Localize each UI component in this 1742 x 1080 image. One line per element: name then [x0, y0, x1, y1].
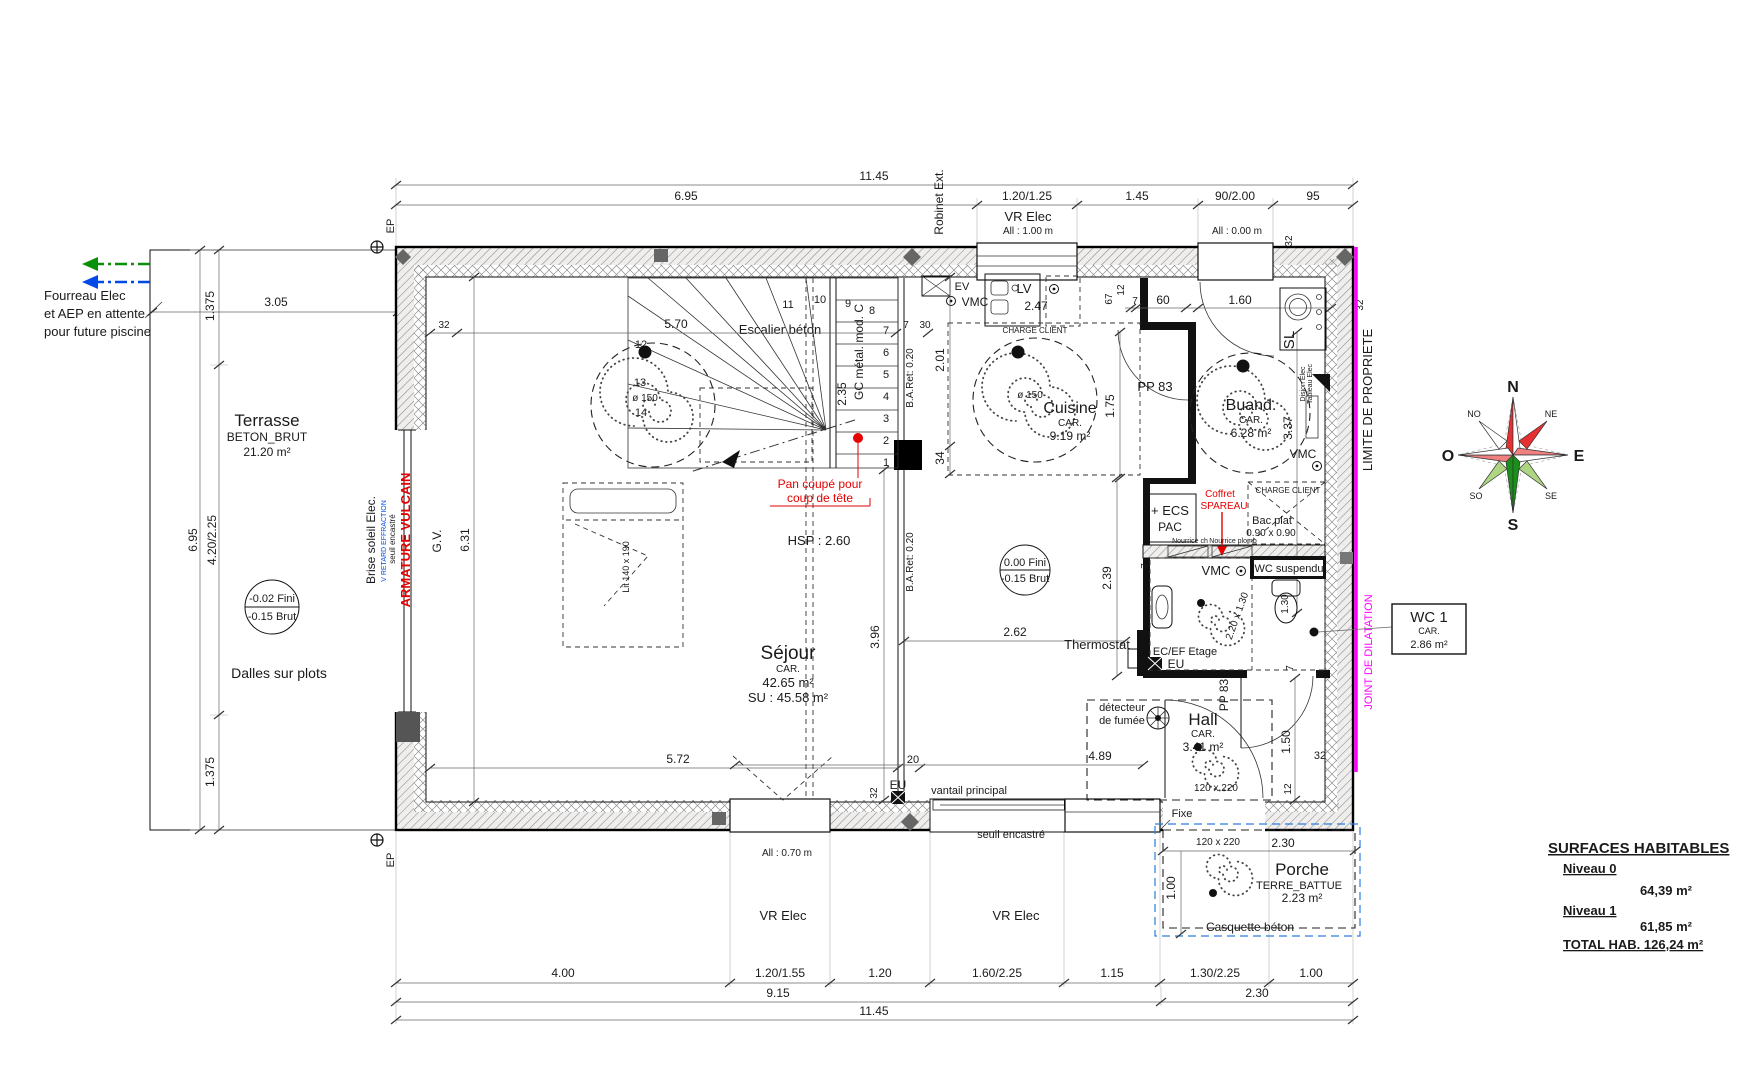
cuisine-area: 9.19 m² — [1050, 429, 1091, 443]
dim-top-695: 6.95 — [674, 189, 698, 203]
tableau-label: Tableau Elec — [1307, 363, 1314, 404]
dim-631: 6.31 — [458, 528, 472, 552]
sink-unit: EV VMC LV 2.47 — [922, 274, 1080, 326]
limite-propriete-label: LIMITE DE PROPRIETE — [1360, 329, 1375, 472]
dim-bot-overall: 11.45 — [859, 1004, 888, 1018]
dim-bot-seg5: 1.15 — [1100, 966, 1124, 980]
svg-text:13: 13 — [634, 377, 646, 389]
fourreau-note-line1: Fourreau Elec — [44, 288, 126, 303]
terrasse-title: Terrasse — [234, 411, 299, 430]
dim-bot-seg2: 1.20/1.55 — [755, 966, 805, 980]
sejour-area: 42.65 m² — [762, 675, 814, 690]
terrasse-area-value: 21.20 m² — [243, 445, 290, 459]
dim-bot-915: 9.15 — [766, 986, 790, 1000]
dim-337: 3.37 — [1281, 416, 1295, 440]
dim-160: 1.60 — [1228, 293, 1252, 307]
allege-070-label: All : 0.70 m — [762, 848, 812, 859]
sejour-car: CAR. — [776, 664, 800, 675]
fixed-panel — [1065, 799, 1160, 832]
dim-150-hall: 1.50 — [1279, 730, 1293, 754]
svg-text:9: 9 — [845, 298, 851, 310]
toilet-symbol: 1.30 — [1272, 580, 1300, 623]
sejour-su: SU : 45.58 m² — [748, 690, 829, 705]
stair-title: Escalier béton — [739, 322, 821, 337]
gv-label: G.V. — [430, 530, 444, 553]
joint-dilatation-label: JOINT DE DILATATION — [1363, 594, 1375, 709]
ecef-label: EC/EF Etage — [1153, 646, 1217, 658]
surfaces-niveau1: Niveau 1 — [1563, 903, 1616, 918]
wc-suspendu-label: WC suspendu — [1254, 563, 1323, 575]
washer-dryer-unit: SL — [1280, 288, 1326, 350]
dim-130: 1.30 — [1280, 594, 1291, 614]
fourreau-note-line3: pour future piscine — [44, 324, 151, 339]
armature-vulcain-label: ARMATURE VULCAIN — [398, 473, 413, 608]
floor-plan-sheet: 3.05 Terrasse BETON_BRUT 21.20 m² -0.02 … — [0, 0, 1742, 1080]
dim-420-225: 4.20/2.25 — [205, 515, 219, 565]
dim-1375-top: 1.375 — [203, 291, 217, 321]
allege-000-label: All : 0.00 m — [1212, 226, 1262, 237]
compass-se: SE — [1545, 491, 1557, 501]
wc-size-label: 2.20 x 1.30 — [1224, 591, 1251, 642]
level-marker-interior: 0.00 Fini -0.15 Brut — [1000, 545, 1050, 595]
allege-100-label: All : 1.00 m — [1003, 226, 1053, 237]
compass-so: SO — [1469, 491, 1482, 501]
ecs-line2: PAC — [1158, 520, 1182, 534]
wc1-title: WC 1 — [1410, 609, 1448, 626]
pan-coupe-line1: Pan coupé pour — [778, 477, 863, 491]
hall-door-size: 120 x 220 — [1194, 783, 1238, 794]
svg-text:3: 3 — [883, 413, 889, 425]
dim-1375-bottom: 1.375 — [203, 757, 217, 787]
cuisine-circle-dim: ø 150 — [1017, 390, 1043, 401]
coffret-label1: Coffret — [1205, 489, 1235, 500]
dim-489: 4.89 — [1088, 749, 1112, 763]
cuisine-car: CAR. — [1058, 418, 1082, 429]
window-bottom-sejour — [730, 756, 833, 832]
svg-text:4: 4 — [883, 391, 889, 403]
sl-label: SL — [1281, 331, 1298, 349]
nourrice-plomb-label: Nourrice plomb — [1209, 538, 1257, 545]
dim-7-sejour: 7 — [903, 320, 909, 331]
dim-top-seg4: 95 — [1306, 189, 1320, 203]
dim-bot-seg1: 4.00 — [551, 966, 575, 980]
eu-marker-bottom: EU — [890, 778, 907, 804]
property-line: LIMITE DE PROPRIETE JOINT DE DILATATION — [1356, 247, 1375, 772]
pp83-kitchen-label: PP 83 — [1137, 379, 1172, 394]
dim-32-bottom: 32 — [869, 787, 880, 799]
svg-text:0.00 Fini: 0.00 Fini — [1004, 557, 1046, 569]
svg-text:8: 8 — [869, 305, 875, 317]
fourreau-note-line2: et AEP en attente — [44, 306, 145, 321]
stair-gc-label: GC métal. mod. C — [852, 304, 866, 400]
dim-262: 2.62 — [1003, 625, 1027, 639]
dim-32-hall: 32 — [1314, 750, 1326, 762]
svg-text:EU: EU — [1168, 657, 1185, 671]
buand-car: CAR. — [1239, 415, 1263, 426]
dim-34: 34 — [933, 451, 947, 465]
buand-area: 6.28 m² — [1231, 426, 1272, 440]
wc1-car: CAR. — [1418, 626, 1440, 636]
svg-text:5: 5 — [883, 369, 889, 381]
porche-title: Porche — [1275, 860, 1329, 879]
dim-12: 12 — [1116, 284, 1127, 296]
seuil-bottom-label: seuil encastré — [977, 829, 1045, 841]
svg-text:11: 11 — [782, 299, 793, 311]
retard-effraction-label: V RETARD EFFRACTION — [381, 500, 388, 582]
vr-elec-bottom1: VR Elec — [760, 908, 807, 923]
svg-text:2: 2 — [883, 435, 889, 447]
vr-elec-bottom2: VR Elec — [993, 908, 1040, 923]
dim-7-kitchen: 7 — [1132, 296, 1138, 307]
dim-30: 30 — [919, 320, 931, 331]
svg-text:EU: EU — [890, 778, 907, 792]
smoke-detector-icon — [1147, 707, 1169, 729]
compass-rose: N NE E SE S SO O NO — [1442, 379, 1585, 534]
dim-239: 2.39 — [1100, 566, 1114, 590]
cuisine-title: Cuisine — [1043, 400, 1096, 417]
bac-size-label: 0.90 x 0.90 — [1246, 528, 1296, 539]
compass-o: O — [1442, 448, 1454, 465]
wc1-area: 2.86 m² — [1410, 639, 1448, 651]
wc-room: VMC WC suspendu 1.30 2.20 x 1.30 2.39 7 … — [899, 474, 1326, 680]
dim-230-porche: 2.30 — [1271, 836, 1295, 850]
bac-plat-label: Bac plat — [1252, 515, 1292, 527]
svg-text:10: 10 — [814, 294, 826, 306]
dim-7-wc: 7 — [1140, 563, 1151, 569]
dim-top-seg2: 1.45 — [1125, 189, 1149, 203]
coffret-label2: SPAREAU — [1200, 501, 1247, 512]
vr-elec-top-label: VR Elec — [1005, 209, 1052, 224]
wall-32-top-right: 32 — [1284, 235, 1295, 247]
dim-top-overall: 11.45 — [859, 169, 888, 183]
nourrice-ch-label: Nourrice ch — [1172, 538, 1208, 545]
vmc-wc-label: VMC — [1202, 563, 1231, 578]
dim-175: 1.75 — [1103, 394, 1117, 418]
bed-symbol: Lit 140 x 190 — [563, 483, 683, 647]
charge-client-bac: CHARGE CLIENT — [1256, 486, 1321, 495]
lv-label: LV — [1017, 281, 1032, 296]
dim-32-sejour: 32 — [438, 320, 450, 331]
casquette-label: Casquette béton — [1206, 920, 1294, 934]
compass-n: N — [1507, 379, 1519, 396]
ep-top-label: EP — [385, 219, 397, 234]
hall-car: CAR. — [1191, 729, 1215, 740]
compass-ne: NE — [1545, 409, 1558, 419]
ev-label: EV — [955, 281, 970, 293]
dim-396: 3.96 — [868, 625, 882, 649]
surfaces-value0: 64,39 m² — [1640, 883, 1693, 898]
dim-7-wc2: 7 — [1285, 665, 1296, 671]
robinet-ext-label: Robinet Ext. — [932, 169, 946, 234]
shower-tray-zone: CHARGE CLIENT Bac plat 0.90 x 0.90 — [1246, 482, 1325, 544]
pp83-hall-label: PP 83 — [1217, 678, 1231, 711]
svg-text:14: 14 — [635, 407, 647, 419]
green-arrow-icon — [82, 257, 98, 271]
dim-201: 2.01 — [933, 348, 947, 372]
ecs-line1: + ECS — [1151, 503, 1189, 518]
dim-bot-seg7: 1.00 — [1299, 966, 1323, 980]
baret-label-1: B.A.Ret: 0.20 — [905, 348, 916, 408]
cuisine-room: EV VMC LV 2.47 CHARGE CLIENT ø 150 Cuisi… — [922, 273, 1336, 482]
blue-arrow-icon — [82, 275, 98, 289]
sejour-room: ø 150 Lit 140 x 190 HSP : 2.60 Séjour CA… — [425, 317, 1045, 841]
vmc-buand-label: VMC — [1290, 447, 1317, 461]
sliding-door-vantail — [930, 799, 1083, 832]
hall-area: 3.41 m² — [1183, 740, 1224, 754]
terrasse-level-fini: -0.02 Fini — [249, 593, 295, 605]
dim-570: 5.70 — [664, 317, 688, 331]
surfaces-value1: 61,85 m² — [1640, 919, 1693, 934]
thermostat-label: Thermostat — [1064, 637, 1130, 652]
stair-235-dim: 2.35 — [835, 382, 849, 406]
dim-12-hall: 12 — [1283, 783, 1294, 795]
terrasse-note: Dalles sur plots — [231, 665, 327, 681]
dim-bot-seg4: 1.60/2.25 — [972, 966, 1022, 980]
surfaces-title: SURFACES HABITABLES — [1548, 840, 1729, 857]
vantail-label: vantail principal — [931, 785, 1007, 797]
svg-text:7: 7 — [883, 325, 889, 337]
detecteur-line2: de fumée — [1099, 715, 1145, 727]
surfaces-total: TOTAL HAB. 126,24 m² — [1563, 937, 1704, 952]
detecteur-line1: détecteur — [1099, 702, 1145, 714]
charge-client-kitchen: CHARGE CLIENT — [1003, 326, 1068, 335]
sejour-circle-dim: ø 150 — [632, 393, 658, 404]
surfaces-niveau0: Niveau 0 — [1563, 861, 1616, 876]
baret-label-2: B.A.Ret: 0.20 — [905, 532, 916, 592]
sejour-hsp: HSP : 2.60 — [788, 533, 851, 548]
hall-title: Hall — [1188, 710, 1217, 729]
bed-label: Lit 140 x 190 — [621, 541, 631, 593]
dim-bot-seg3: 1.20 — [868, 966, 892, 980]
dim-bot-seg6: 1.30/2.25 — [1190, 966, 1240, 980]
dim-20: 20 — [907, 754, 919, 766]
ep-marker-top-icon — [371, 241, 383, 253]
terrasse-width-dim: 3.05 — [264, 295, 288, 309]
svg-text:6: 6 — [883, 347, 889, 359]
ep-marker-bottom-icon — [371, 834, 383, 846]
terrasse-level-brut: -0.15 Brut — [248, 611, 296, 623]
pan-coupe-marker — [853, 433, 863, 443]
porche-area-value: 2.23 m² — [1282, 891, 1323, 905]
dim-top-seg3: 90/2.00 — [1215, 189, 1255, 203]
eu-marker-wc: EU — [1148, 657, 1184, 671]
dim-100-porche: 1.00 — [1164, 876, 1178, 900]
dim-bot-230: 2.30 — [1245, 986, 1269, 1000]
compass-s: S — [1508, 517, 1519, 534]
seuil-encastre-left-label: seuil encastré — [388, 514, 397, 564]
buand-title: Buand. — [1226, 397, 1277, 414]
sejour-title: Séjour — [761, 643, 817, 664]
brise-soleil-label: Brise soleil Elec. — [364, 496, 378, 584]
dim-572: 5.72 — [666, 752, 690, 766]
svg-text:-0.15 Brut: -0.15 Brut — [1001, 573, 1049, 585]
surfaces-table: SURFACES HABITABLES Niveau 0 64,39 m² Ni… — [1548, 840, 1729, 952]
terrasse-material: BETON_BRUT — [227, 430, 308, 444]
porche-fixe-label: Fixe — [1172, 808, 1193, 820]
future-pool-annotation: Fourreau Elec et AEP en attente pour fut… — [44, 257, 162, 339]
ep-bottom-label: EP — [385, 853, 397, 868]
compass-no: NO — [1467, 409, 1481, 419]
dim-60: 60 — [1156, 293, 1170, 307]
washbasin-symbol — [1152, 586, 1172, 628]
porche-door-size: 120 x 220 — [1196, 837, 1240, 848]
dim-top-seg1: 1.20/1.25 — [1002, 189, 1052, 203]
dim-247: 2.47 — [1024, 299, 1048, 313]
compass-e: E — [1574, 448, 1585, 465]
pan-coupe-line2: coup de tête — [787, 491, 853, 505]
top-dimension-lines: 11.45 6.95 1.20/1.25 1.45 90/2.00 95 Rob… — [371, 169, 1366, 311]
dim-695-left: 6.95 — [186, 528, 200, 552]
dim-67: 67 — [1104, 293, 1115, 305]
